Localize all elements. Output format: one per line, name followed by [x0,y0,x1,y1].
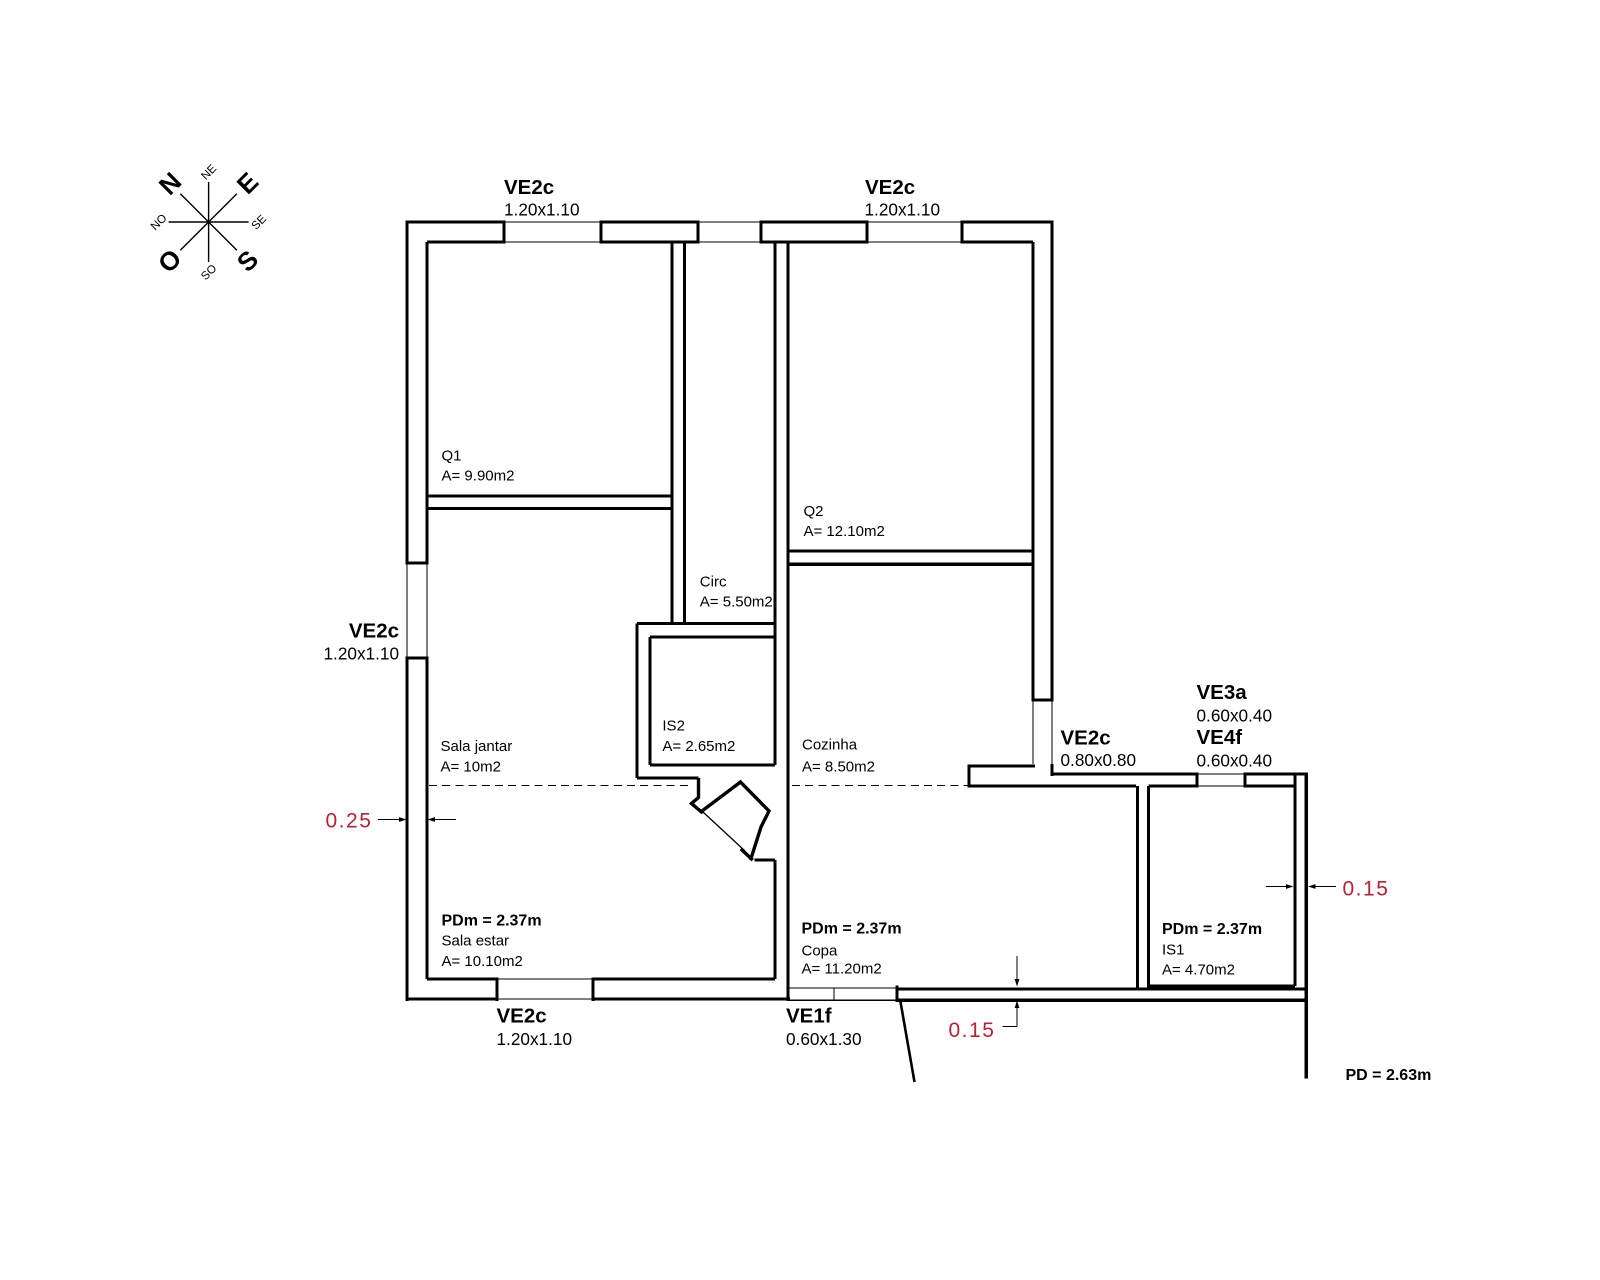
svg-text:VE2c: VE2c [349,620,399,643]
svg-text:0.60x0.40: 0.60x0.40 [1197,705,1273,725]
svg-text:Copa: Copa [802,942,839,959]
svg-text:0.15: 0.15 [1343,878,1390,901]
svg-text:0.80x0.80: 0.80x0.80 [1061,750,1137,770]
svg-text:1.20x1.10: 1.20x1.10 [324,644,400,664]
svg-text:A= 5.50m2: A= 5.50m2 [700,594,773,611]
svg-text:VE2c: VE2c [504,176,554,199]
svg-text:A= 8.50m2: A= 8.50m2 [802,758,875,775]
svg-text:IS2: IS2 [662,718,685,735]
svg-text:PDm = 2.37m: PDm = 2.37m [802,921,902,938]
svg-text:A= 9.90m2: A= 9.90m2 [442,468,515,485]
svg-text:VE2c: VE2c [865,176,915,199]
svg-text:VE2c: VE2c [497,1004,547,1027]
svg-text:0.60x0.40: 0.60x0.40 [1197,751,1273,771]
svg-text:A= 4.70m2: A= 4.70m2 [1162,962,1235,979]
svg-text:Cozinha: Cozinha [802,737,858,754]
svg-text:A= 2.65m2: A= 2.65m2 [662,738,735,755]
svg-text:Q1: Q1 [442,448,462,465]
svg-text:A= 10.10m2: A= 10.10m2 [442,953,523,970]
svg-text:1.20x1.10: 1.20x1.10 [504,200,580,220]
svg-text:1.20x1.10: 1.20x1.10 [865,200,941,220]
svg-text:Circ: Circ [700,574,727,591]
svg-text:0.15: 0.15 [949,1019,996,1042]
svg-text:VE1f: VE1f [786,1004,832,1027]
svg-text:Sala jantar: Sala jantar [441,738,513,755]
svg-text:IS1: IS1 [1162,942,1185,959]
svg-text:PDm = 2.37m: PDm = 2.37m [442,913,542,930]
svg-text:A= 10m2: A= 10m2 [441,759,501,776]
svg-text:VE2c: VE2c [1061,726,1111,749]
svg-text:PD = 2.63m: PD = 2.63m [1346,1067,1432,1084]
svg-text:1.20x1.10: 1.20x1.10 [497,1029,573,1049]
svg-text:VE4f: VE4f [1197,726,1243,749]
svg-text:Q2: Q2 [804,503,824,520]
svg-text:PDm = 2.37m: PDm = 2.37m [1162,921,1262,938]
svg-text:Sala estar: Sala estar [442,933,510,950]
svg-text:VE3a: VE3a [1197,681,1248,704]
svg-text:A= 12.10m2: A= 12.10m2 [804,523,885,540]
svg-text:A= 11.20m2: A= 11.20m2 [802,961,882,978]
svg-text:0.25: 0.25 [326,810,373,833]
svg-text:0.60x1.30: 0.60x1.30 [786,1029,862,1049]
